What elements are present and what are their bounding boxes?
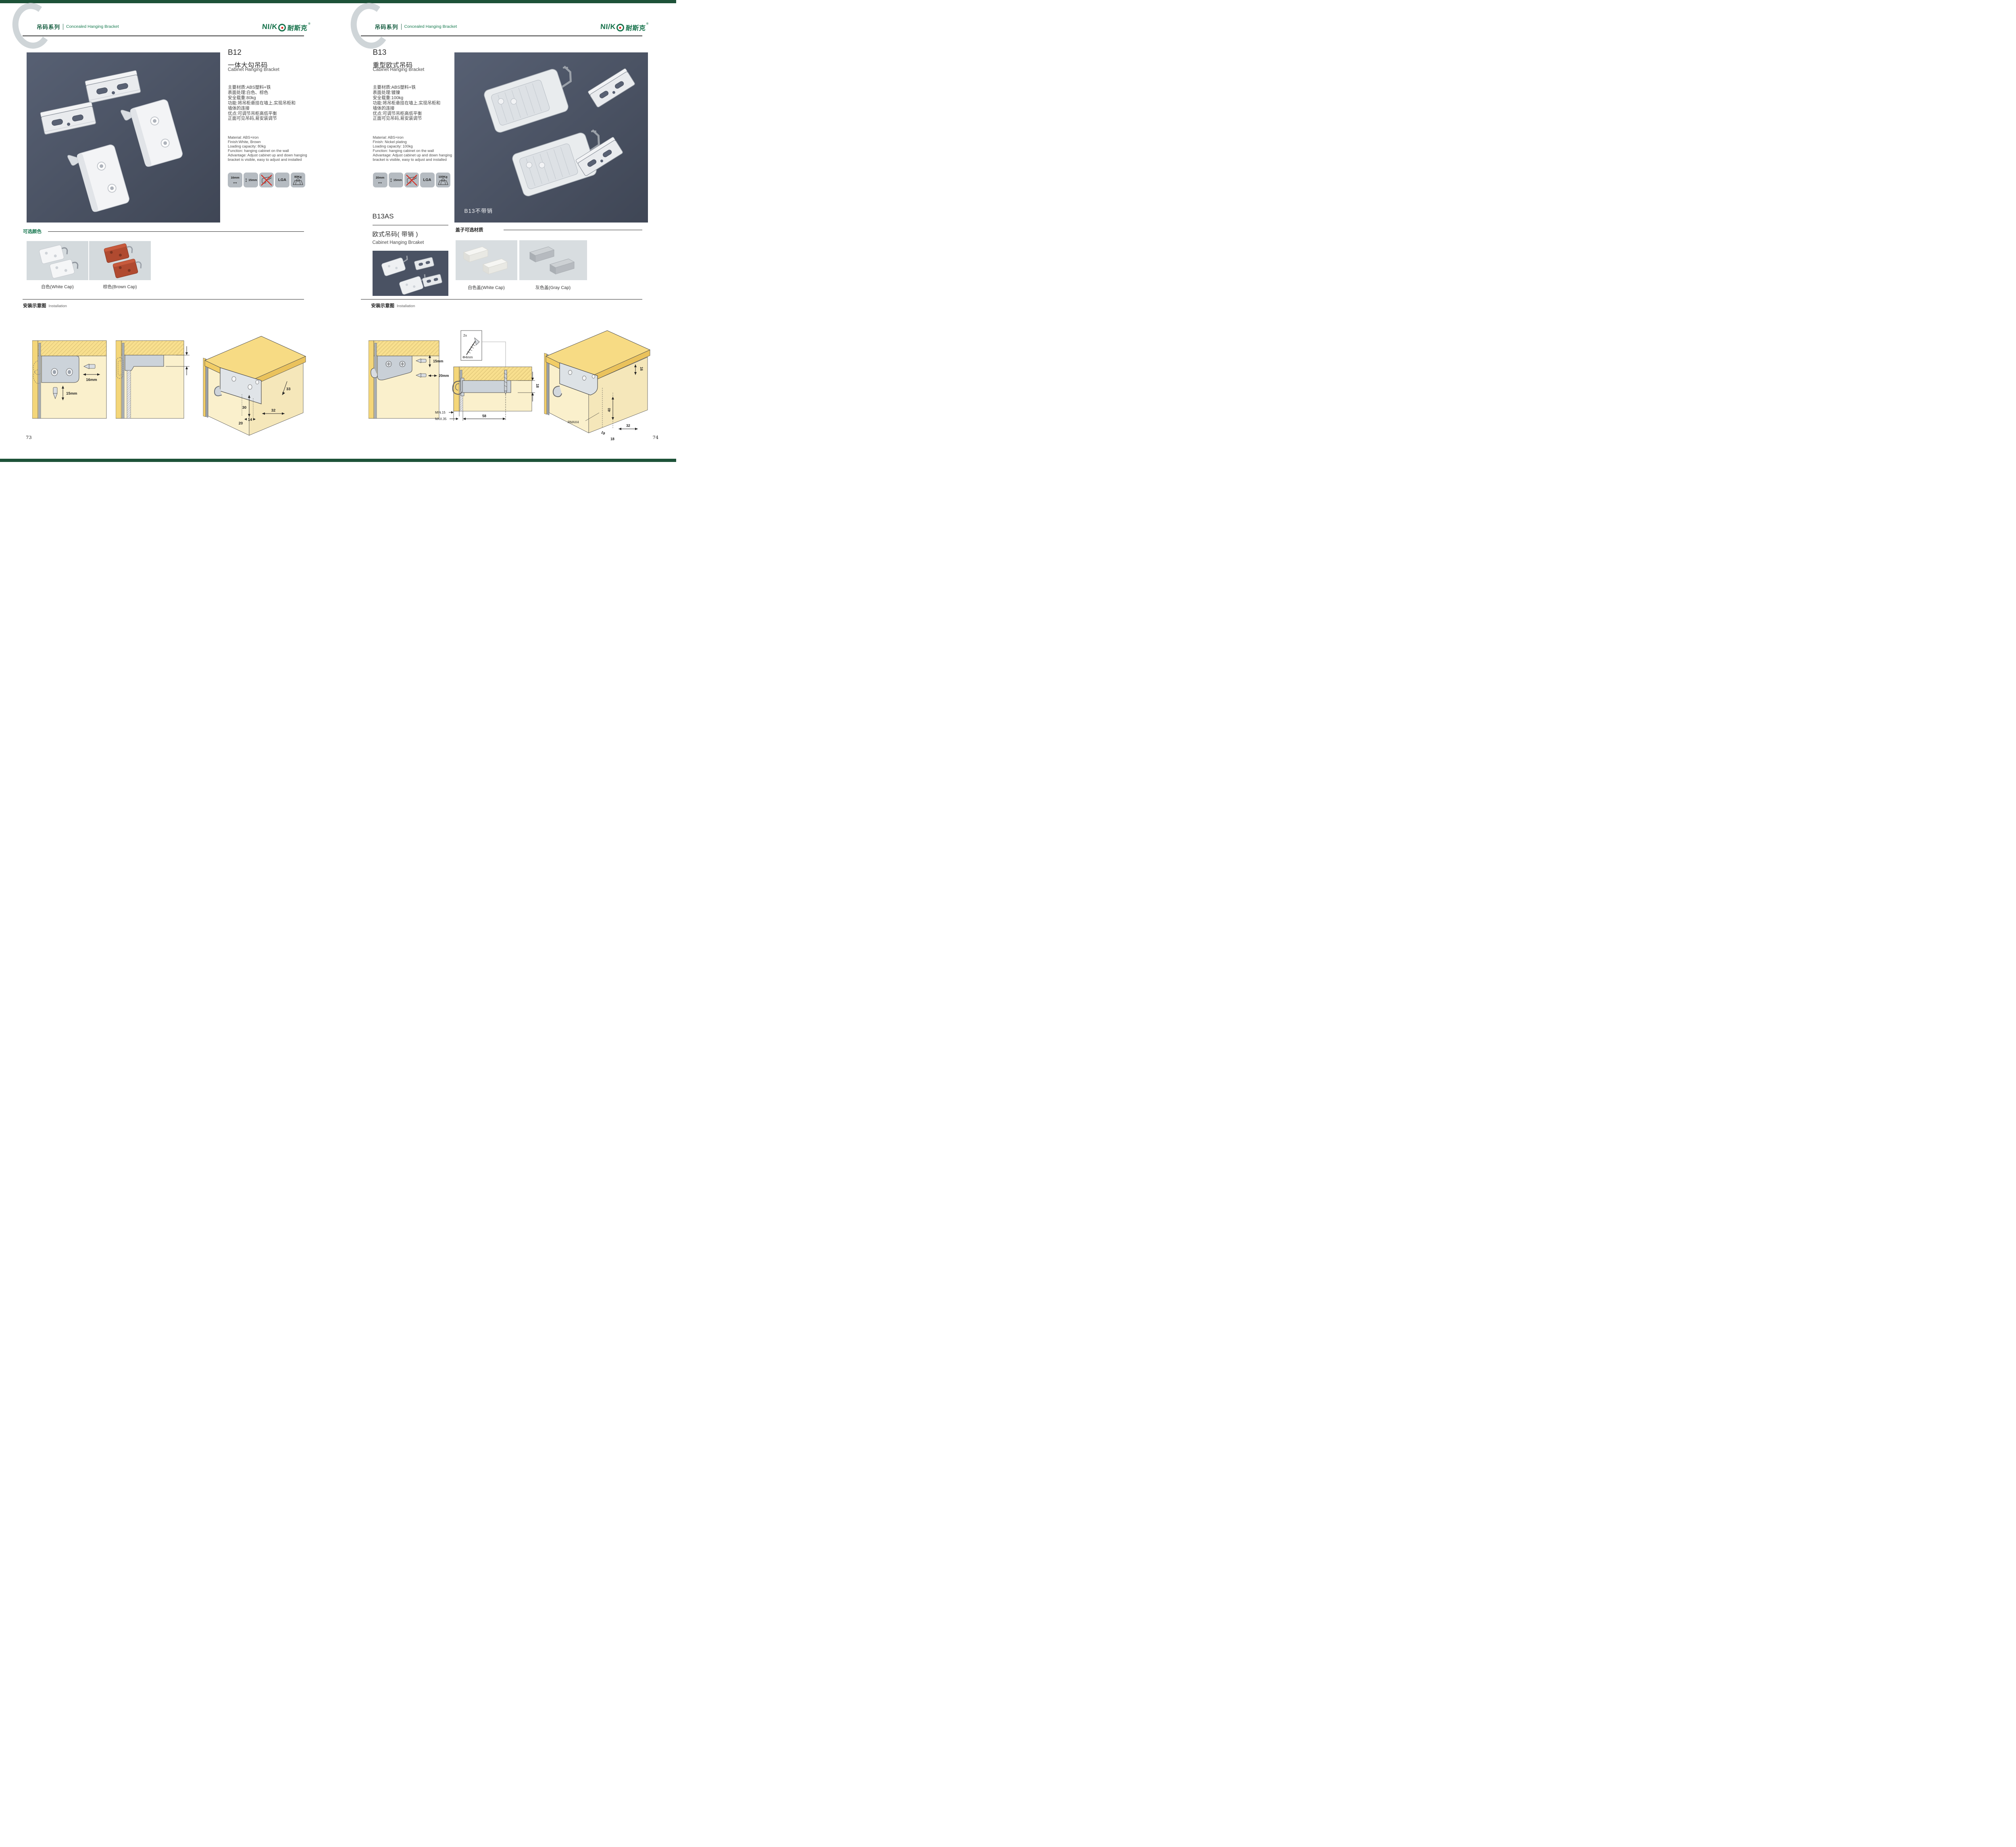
load-capacity-icon: 80Kg [291, 173, 305, 187]
spec-line: Function: hanging cabinet on the wall [228, 149, 310, 153]
load-label: 100Kg [438, 175, 447, 179]
spec-line: 优点:可调节吊柜高低平衡 [373, 111, 454, 116]
load-label: 80Kg [294, 175, 302, 179]
spec-line: 主要材质:ABS塑料+铁 [228, 85, 308, 90]
installation-title-en: Installation [49, 304, 67, 308]
b12-product-photo [27, 52, 220, 223]
installation-title-en: Installation [397, 304, 415, 308]
product-name-en: Cabinet Hanging Bracket [373, 67, 425, 72]
spec-line: 安全载重:100kg [373, 96, 454, 101]
series-header: 吊码系列 Concealed Hanging Bracket [37, 23, 119, 31]
horizontal-arrow-icon: ↔ [232, 179, 238, 185]
subproduct-name-cn: 欧式吊码( 带销 ) [373, 230, 418, 238]
spec-line: 正面可见吊码,易安装调节 [228, 116, 308, 121]
lga-cert-icon: LGA [420, 173, 435, 187]
spec-line: 墙体的连接 [373, 106, 454, 111]
spec-line: 功能:将吊柜悬挂在墙上,实现吊柜和 [373, 101, 454, 106]
brand-logo-o-icon [278, 24, 286, 31]
dim-max35: MAX.35 [435, 417, 447, 421]
subproduct-rule [373, 225, 448, 225]
page-number-left: 73 [26, 435, 32, 440]
installation-diagram-side: 18 [116, 340, 190, 422]
dim-30: 30 [242, 406, 247, 410]
dim-58: 58 [482, 414, 486, 418]
installation-divider [23, 299, 304, 300]
brown-cap-photo [89, 241, 151, 280]
vertical-arrow-icon: ↕ [245, 177, 248, 183]
screw-diameter-label: Φ4mm [462, 355, 473, 359]
dim-15mm: 15mm [66, 391, 77, 396]
subproduct-name-en: Cabinet Hanging Brcaket [373, 240, 424, 245]
product-specs-cn: 主要材质:ABS塑料+铁 表面处理:白色、棕色 安全载重:80kg 功能:将吊柜… [228, 85, 308, 121]
white-cap-caption: 白色(White Cap) [27, 283, 88, 290]
spec-line: 正面可见吊码,易安装调节 [373, 116, 454, 121]
spec-line: Finish: Nickel plating [373, 140, 456, 144]
installation-title-cn: 安装示意图 [23, 302, 46, 309]
spec-line: 表面处理:镀镍 [373, 90, 454, 96]
panel-height-icon: ↕ 15mm [244, 173, 258, 187]
brand-logo: NI/K 耐斯克 ® [262, 23, 310, 32]
series-title-en: Concealed Hanging Bracket [404, 24, 457, 29]
dim-14: 14 [248, 418, 252, 422]
series-header: 吊码系列 Concealed Hanging Bracket [375, 23, 457, 31]
spec-line: 安全载重:80kg [228, 96, 308, 101]
product-specs-en: Material: ABS+iron Finish: Nickel platin… [373, 135, 456, 162]
product-feature-icons: 20mm ↔ ↕ 15mm LGA 100Kg [373, 173, 450, 187]
product-feature-icons: 16mm ↔ ↕ 15mm LGA 80Kg [228, 173, 305, 187]
b13-product-photo: B13不带销 [454, 52, 648, 223]
vertical-arrow-icon: ↕ [389, 177, 393, 183]
white-cap-option-photo [456, 240, 517, 280]
dim-rmax4: RMAX4 [568, 420, 579, 424]
brand-logo-registered: ® [308, 23, 310, 25]
dim-33: 33 [286, 387, 291, 391]
installation-header: 安装示意图 Installation [23, 302, 67, 309]
spec-line: Loading capacity: 100kg [373, 144, 456, 149]
panel-height-label: 15mm [394, 178, 402, 182]
header-rule [23, 35, 304, 36]
spec-line: Loading capacity: 80kg [228, 144, 310, 149]
installation-title-cn: 安装示意图 [371, 302, 395, 309]
white-cap-photo [27, 241, 88, 280]
series-title-cn: 吊码系列 [37, 23, 60, 31]
dim-32: 32 [271, 408, 276, 413]
installation-diagram-perspective: 16 40 RMAX4 19 18 32 [542, 327, 652, 444]
brand-logo-o-icon [616, 24, 624, 31]
installation-diagram-perspective: 30 33 32 20 14 [202, 334, 308, 441]
lga-label: LGA [278, 178, 286, 182]
brand-logo-latin: NI/K [262, 23, 277, 31]
dim-min15: MIN.15 [435, 411, 446, 414]
gray-cap-option-caption: 灰色盖(Gray Cap) [519, 284, 587, 291]
dim-19: 19 [600, 430, 606, 436]
header-rule [361, 35, 642, 36]
b13as-product-photo [373, 251, 448, 296]
dim-40: 40 [607, 408, 611, 412]
series-title-en: Concealed Hanging Bracket [66, 24, 119, 29]
spec-line: bracket is visible, easy to adjust and i… [373, 158, 456, 162]
page-number-right: 74 [653, 435, 659, 440]
spec-line: Function: hanging cabinet on the wall [373, 149, 456, 153]
dim-18: 18 [189, 358, 190, 362]
subproduct-code: B13AS [373, 212, 394, 220]
dim-16mm: 16mm [86, 378, 97, 382]
series-title-cn: 吊码系列 [375, 23, 398, 31]
brand-logo-registered: ® [646, 23, 648, 25]
product-specs-cn: 主要材质:ABS塑料+铁 表面处理:镀镍 安全载重:100kg 功能:将吊柜悬挂… [373, 85, 454, 121]
spec-line: 优点:可调节吊柜高低平衡 [228, 111, 308, 116]
page-right: 吊码系列 Concealed Hanging Bracket NI/K 耐斯克 … [338, 0, 676, 462]
dim-18: 18 [535, 384, 539, 388]
spec-line: 墙体的连接 [228, 106, 308, 111]
spec-line: bracket is visible, easy to adjust and i… [228, 158, 310, 162]
spec-line: Advantage: Adjust cabinet up and down ha… [228, 153, 310, 158]
panel-height-icon: ↕ 15mm [389, 173, 403, 187]
load-capacity-icon: 100Kg [436, 173, 450, 187]
series-divider [401, 24, 402, 30]
spec-line: Material: ABS+iron [228, 135, 310, 140]
color-options-title: 可选颜色 [23, 228, 42, 235]
screw-count-label: 2x [463, 333, 467, 337]
spec-line: Finish:White, Brown [228, 140, 310, 144]
dim-18b: 18 [610, 437, 614, 441]
brand-logo-latin: NI/K [600, 23, 616, 31]
page-left: 吊码系列 Concealed Hanging Bracket NI/K 耐斯克 … [0, 0, 338, 462]
dim-32: 32 [626, 424, 630, 428]
brand-logo-cn: 耐斯克 [287, 23, 308, 32]
gray-cap-option-photo [519, 240, 587, 280]
series-divider [63, 24, 63, 30]
horizontal-arrow-icon: ↔ [377, 179, 383, 185]
catalog-spread: 吊码系列 Concealed Hanging Bracket NI/K 耐斯克 … [0, 0, 676, 462]
brand-logo-cn: 耐斯克 [625, 23, 646, 32]
panel-width-icon: 16mm ↔ [228, 173, 242, 187]
installation-divider [361, 299, 642, 300]
no-drill-icon [404, 173, 419, 187]
installation-header: 安装示意图 Installation [371, 302, 415, 309]
spec-line: Advantage: Adjust cabinet up and down ha… [373, 153, 456, 158]
brand-logo: NI/K 耐斯克 ® [600, 23, 649, 32]
lga-cert-icon: LGA [275, 173, 289, 187]
spec-line: 表面处理:白色、棕色 [228, 90, 308, 96]
spec-line: 主要材质:ABS塑料+铁 [373, 85, 454, 90]
brown-cap-caption: 棕色(Brown Cap) [89, 283, 151, 290]
product-name-en: Cabinet Hanging Bracket [228, 67, 279, 72]
product-code: B12 [228, 48, 242, 57]
panel-height-label: 15mm [248, 178, 257, 182]
panel-width-icon: 20mm ↔ [373, 173, 387, 187]
spec-line: 功能:将吊柜悬挂在墙上,实现吊柜和 [228, 101, 308, 106]
dim-16: 16 [639, 367, 644, 371]
product-specs-en: Material: ABS+iron Finish:White, Brown L… [228, 135, 310, 162]
caps-options-title: 盖子可选材质 [456, 227, 483, 233]
color-options-rule [48, 231, 304, 232]
installation-diagram-screw: 2x Φ4mm [435, 330, 540, 424]
product-code: B13 [373, 48, 387, 57]
spec-line: Material: ABS+iron [373, 135, 456, 140]
lga-label: LGA [423, 178, 431, 182]
no-drill-icon [259, 173, 274, 187]
installation-diagram-corner: 16mm 15mm [32, 340, 109, 422]
white-cap-option-caption: 白色盖(White Cap) [456, 284, 517, 291]
dim-20: 20 [239, 421, 243, 426]
b13-variant-label: B13不带销 [464, 206, 493, 214]
caps-options-rule [504, 230, 642, 230]
